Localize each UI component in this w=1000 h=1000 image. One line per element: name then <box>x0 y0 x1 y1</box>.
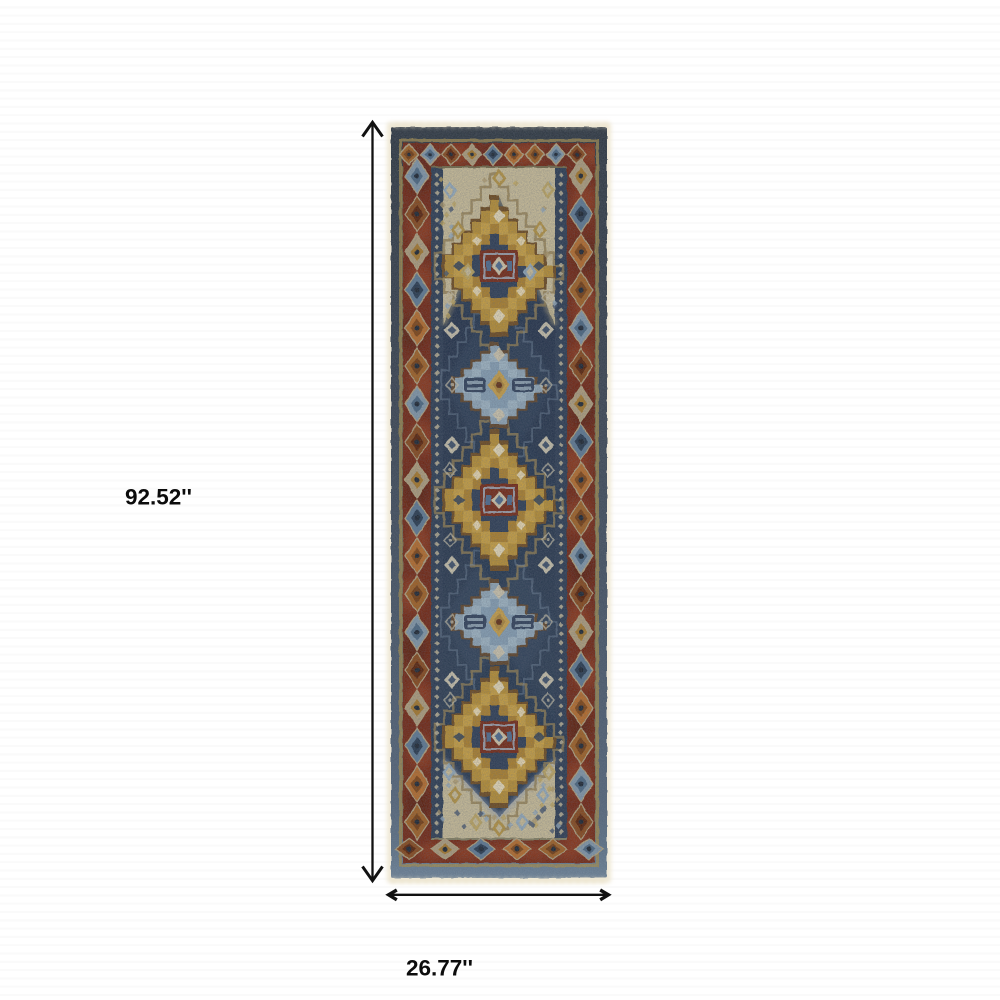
svg-text:26.77'': 26.77'' <box>406 956 473 981</box>
svg-text:92.52'': 92.52'' <box>125 485 192 510</box>
